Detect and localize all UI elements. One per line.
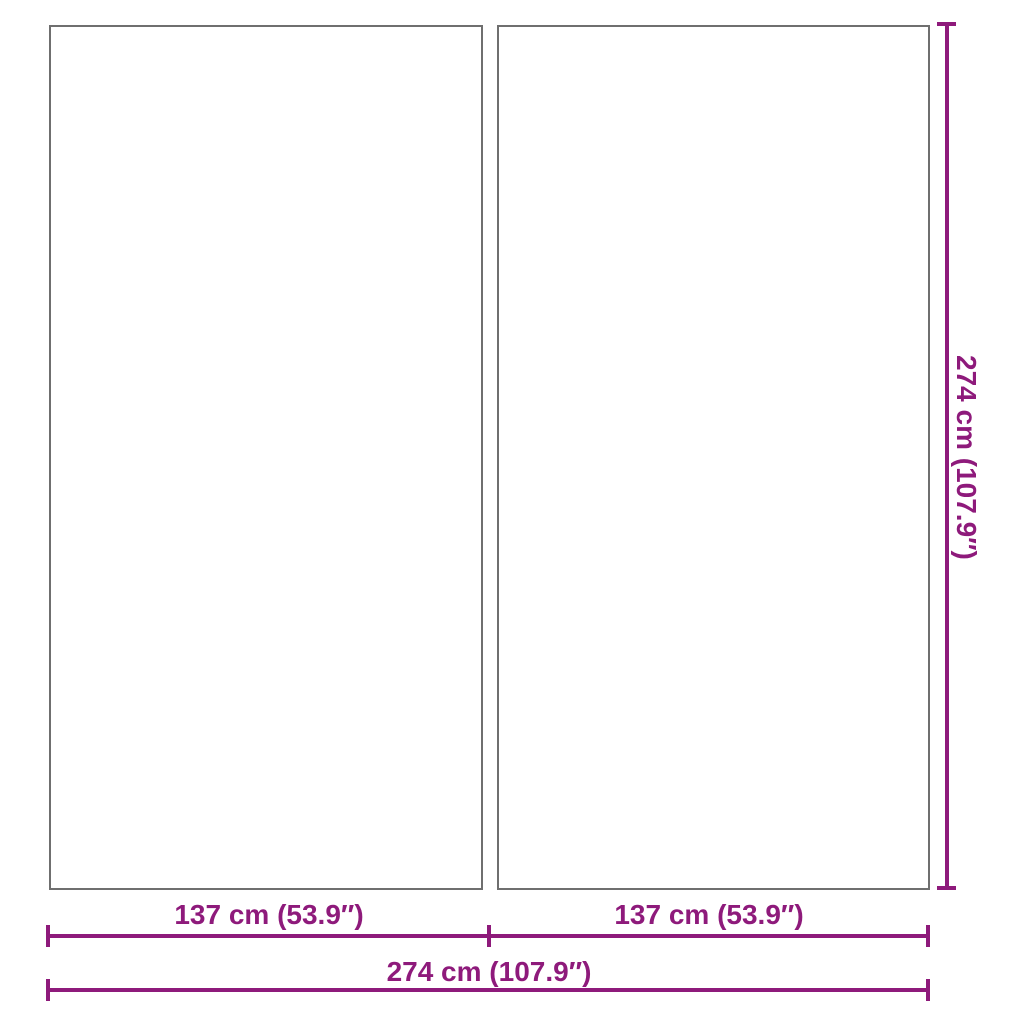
dimension-diagram: 274 cm (107.9″) 137 cm (53.9″) 137 cm (5… [0, 0, 1024, 1024]
left-panel [49, 25, 483, 890]
left-panel-width-label: 137 cm (53.9″) [49, 901, 489, 929]
total-width-label: 274 cm (107.9″) [48, 958, 930, 986]
right-panel-width-label: 137 cm (53.9″) [489, 901, 929, 929]
total-width-dimension-line [48, 988, 930, 992]
height-dimension-label: 274 cm (107.9″) [950, 25, 981, 890]
height-dimension-line [945, 22, 949, 890]
right-panel [497, 25, 930, 890]
